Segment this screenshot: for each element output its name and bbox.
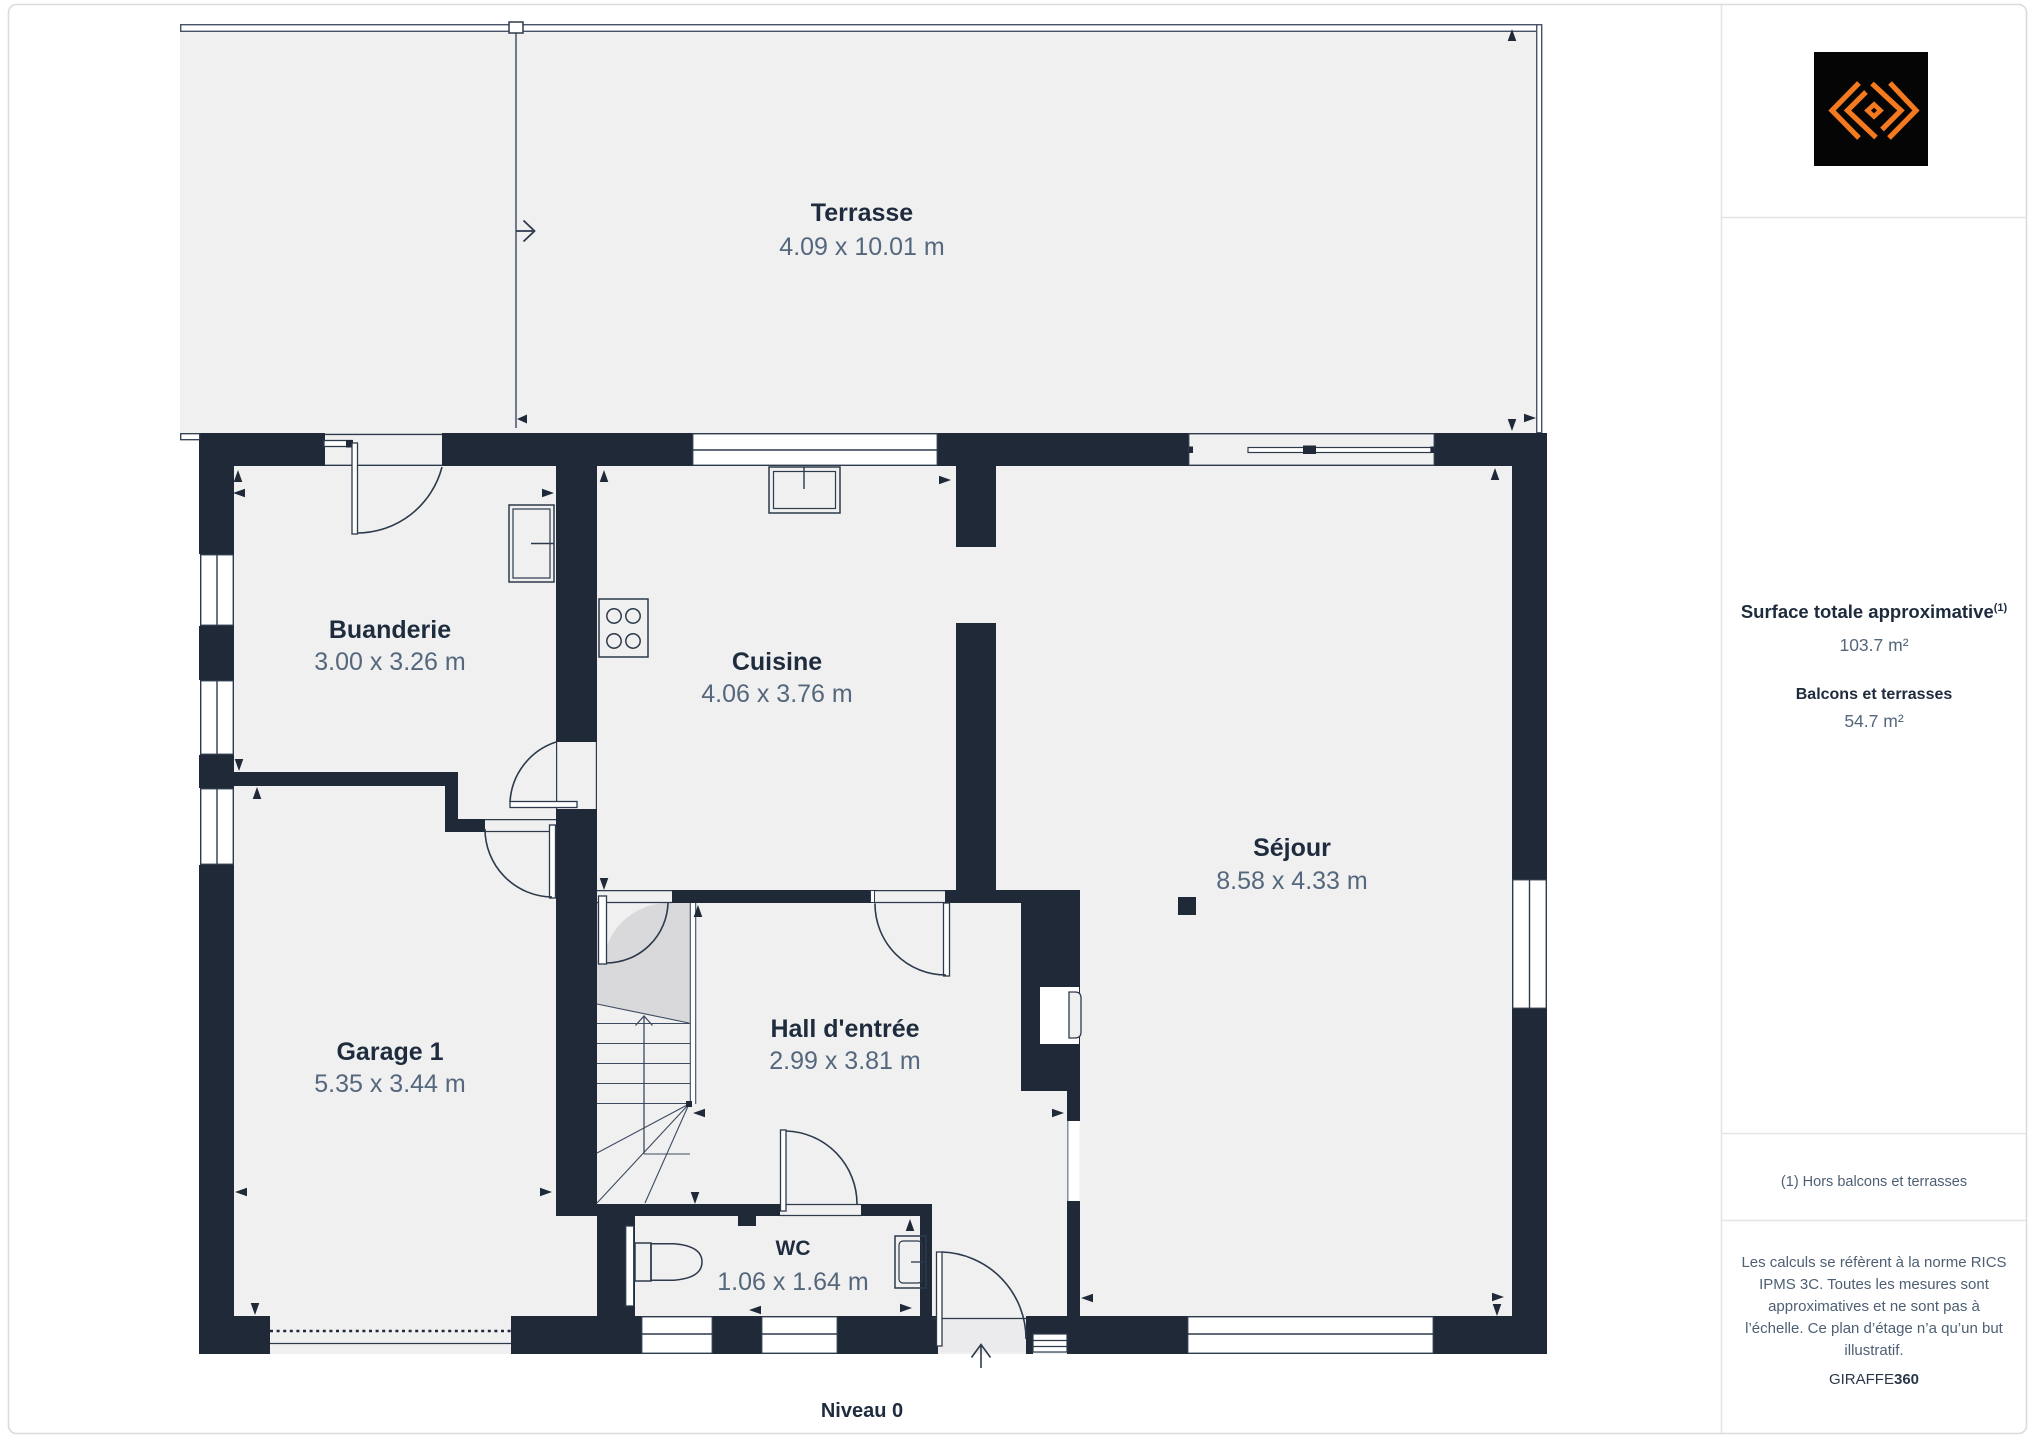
- svg-text:IPMS 3C. Toutes les mesures so: IPMS 3C. Toutes les mesures sont: [1759, 1276, 1990, 1293]
- svg-text:4.09 x 10.01 m: 4.09 x 10.01 m: [779, 233, 944, 261]
- svg-text:GIRAFFE360: GIRAFFE360: [1829, 1371, 1919, 1388]
- svg-text:Les calculs se réfèrent à la n: Les calculs se réfèrent à la norme RICS: [1741, 1254, 2006, 1271]
- svg-text:8.58 x 4.33 m: 8.58 x 4.33 m: [1216, 867, 1367, 895]
- svg-text:Surface totale approximative(1: Surface totale approximative(1): [1741, 601, 2008, 622]
- svg-text:103.7 m²: 103.7 m²: [1839, 635, 1908, 655]
- svg-text:54.7 m²: 54.7 m²: [1844, 711, 1903, 731]
- svg-text:l’échelle. Ce plan d’étage n’a: l’échelle. Ce plan d’étage n’a qu’un but: [1745, 1320, 2004, 1337]
- svg-text:illustratif.: illustratif.: [1844, 1342, 1903, 1359]
- svg-text:1.06 x 1.64 m: 1.06 x 1.64 m: [717, 1268, 868, 1296]
- svg-text:(1) Hors balcons et terrasses: (1) Hors balcons et terrasses: [1781, 1174, 1967, 1190]
- svg-text:approximatives et ne sont pas: approximatives et ne sont pas à: [1768, 1298, 1980, 1315]
- svg-text:4.06 x 3.76 m: 4.06 x 3.76 m: [701, 680, 852, 708]
- svg-text:Garage 1: Garage 1: [336, 1038, 443, 1066]
- svg-text:Buanderie: Buanderie: [329, 616, 451, 644]
- svg-text:3.00 x 3.26 m: 3.00 x 3.26 m: [314, 648, 465, 676]
- svg-text:Séjour: Séjour: [1253, 834, 1331, 862]
- svg-text:Niveau 0: Niveau 0: [821, 1400, 903, 1422]
- svg-text:Balcons et terrasses: Balcons et terrasses: [1796, 686, 1953, 703]
- svg-text:Cuisine: Cuisine: [732, 648, 822, 676]
- svg-text:5.35 x 3.44 m: 5.35 x 3.44 m: [314, 1070, 465, 1098]
- svg-text:Hall d'entrée: Hall d'entrée: [770, 1015, 919, 1043]
- svg-text:WC: WC: [776, 1237, 811, 1260]
- svg-text:2.99 x 3.81 m: 2.99 x 3.81 m: [769, 1047, 920, 1075]
- svg-text:Terrasse: Terrasse: [811, 199, 913, 227]
